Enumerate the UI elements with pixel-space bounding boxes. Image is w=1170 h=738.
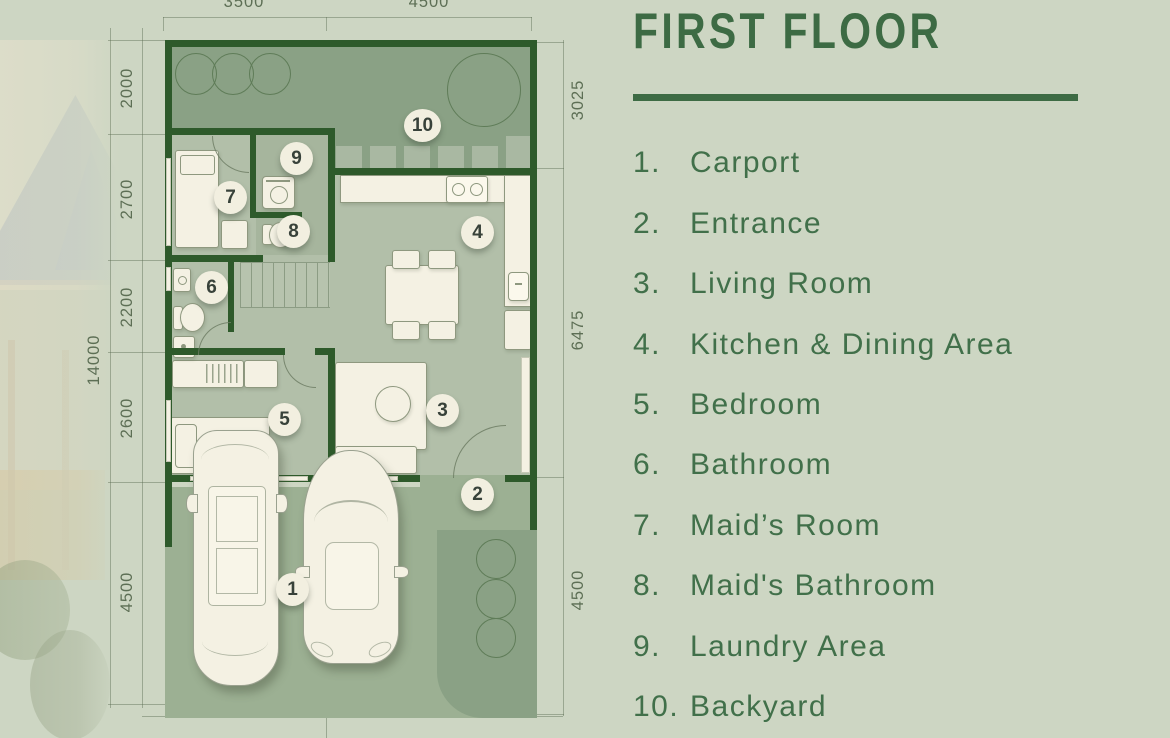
dimension-line [163, 17, 532, 18]
burner-icon [470, 183, 483, 196]
room-badge-bedroom: 5 [268, 403, 301, 436]
page-title: FIRST FLOOR [633, 2, 942, 60]
car-rear-window [202, 627, 268, 656]
dining-chair [428, 321, 456, 340]
dim-label-left-2000: 2000 [119, 58, 135, 118]
legend-item-label: Kitchen & Dining Area [690, 328, 1013, 362]
window-bathroom [166, 267, 171, 291]
dim-label-top-2: 4500 [399, 0, 459, 10]
dimension-tick [108, 40, 165, 41]
room-badge-bathroom: 6 [195, 271, 228, 304]
bedroom-cabinet [244, 360, 278, 388]
dimension-tick [108, 482, 165, 483]
dim-label-right-3025: 3025 [570, 70, 586, 130]
bathroom-sink-icon [173, 268, 191, 292]
dimension-tick [537, 477, 564, 478]
wall-maid-divider [250, 135, 256, 215]
legend-item: 10. Backyard [633, 677, 1103, 737]
legend-item-number: 5. [633, 388, 690, 422]
car-sunroof [216, 496, 258, 542]
dim-label-left-4500: 4500 [119, 562, 135, 622]
stove-icon [446, 176, 488, 203]
car-icon [193, 430, 279, 686]
dim-label-left-2700: 2700 [119, 169, 135, 229]
dimension-tick [531, 17, 532, 31]
dimension-tick [108, 704, 165, 705]
legend-item: 3. Living Room [633, 254, 1103, 314]
legend-item-number: 8. [633, 569, 690, 603]
toilet-icon [180, 303, 205, 332]
title-divider [633, 94, 1078, 101]
washing-machine-icon [262, 176, 295, 209]
wall-right [530, 40, 537, 530]
basin-icon [178, 276, 187, 285]
legend-item: 2. Entrance [633, 193, 1103, 253]
maid-bed [175, 150, 219, 248]
room-badge-living-room: 3 [426, 394, 459, 427]
bedroom-dresser [172, 360, 244, 388]
legend-item: 5. Bedroom [633, 375, 1103, 435]
faucet-icon [515, 283, 522, 285]
legend-item: 7. Maid’s Room [633, 496, 1103, 556]
dimension-tick [108, 352, 165, 353]
tree-icon [249, 53, 291, 95]
dining-table [385, 265, 459, 325]
legend-item-label: Bathroom [690, 448, 832, 482]
dim-label-left-total: 14000 [86, 325, 102, 395]
wall-top [165, 40, 537, 47]
legend-item-label: Entrance [690, 207, 822, 241]
car-roof [325, 542, 379, 610]
legend-item-number: 7. [633, 509, 690, 543]
dim-label-left-2200: 2200 [119, 277, 135, 337]
legend-item: 8. Maid's Bathroom [633, 556, 1103, 616]
tree-icon [212, 53, 254, 95]
floor-plan-page: 3500 4500 2000 2700 2200 2600 4500 14000… [0, 0, 1170, 738]
tree-icon [476, 579, 516, 619]
wall-kitchen-top [335, 168, 530, 175]
wall-left [165, 40, 172, 547]
dimension-tick [163, 17, 164, 31]
paving-stone [506, 136, 530, 172]
window-maid-room [166, 158, 171, 246]
legend-item-label: Maid's Bathroom [690, 569, 937, 603]
tree-icon [476, 539, 516, 579]
legend-item-number: 1. [633, 146, 690, 180]
room-badge-maid-room: 7 [214, 181, 247, 214]
dresser-hatch [206, 364, 239, 383]
dim-label-top-1: 3500 [214, 0, 274, 10]
fridge-icon [504, 310, 532, 350]
coffee-table-icon [375, 386, 411, 422]
wall-maid-top [165, 128, 335, 135]
legend-item-number: 3. [633, 267, 690, 301]
legend-item-number: 10. [633, 690, 690, 724]
pillow-icon [180, 155, 215, 175]
room-badge-kitchen-dining: 4 [461, 216, 494, 249]
large-tree-icon [447, 53, 521, 127]
legend-item: 9. Laundry Area [633, 617, 1103, 677]
dimension-line [142, 28, 143, 708]
dining-chair [392, 250, 420, 269]
room-badge-carport: 1 [276, 573, 309, 606]
dimension-line [110, 28, 111, 708]
legend-item-label: Carport [690, 146, 801, 180]
wall-maid-right [328, 128, 335, 262]
legend-item-number: 2. [633, 207, 690, 241]
dimension-line [563, 40, 564, 716]
legend-item: 6. Bathroom [633, 435, 1103, 495]
legend-item-label: Backyard [690, 690, 827, 724]
legend-item: 1. Carport [633, 133, 1103, 193]
kitchen-sink-icon [508, 272, 529, 301]
burner-icon [452, 183, 465, 196]
legend-item-label: Living Room [690, 267, 873, 301]
room-badge-maid-bathroom: 8 [277, 215, 310, 248]
car-icon [303, 450, 399, 664]
wall-maid-bottom [165, 255, 263, 262]
dimension-tick [326, 17, 327, 31]
window-entrance-side [521, 357, 530, 473]
dim-label-right-4500: 4500 [570, 560, 586, 620]
dimension-tick [108, 260, 165, 261]
tree-icon [476, 618, 516, 658]
legend-list: 1. Carport 2. Entrance 3. Living Room 4.… [633, 133, 1103, 737]
legend-item-number: 9. [633, 630, 690, 664]
dimension-tick [537, 42, 564, 43]
wall-front-stub [505, 475, 537, 482]
dimension-tick [537, 168, 564, 169]
legend-panel: FIRST FLOOR 1. Carport 2. Entrance 3. Li… [633, 0, 1103, 738]
dining-chair [428, 250, 456, 269]
washer-panel [266, 180, 290, 182]
window-bedroom-side [166, 400, 171, 462]
car-windshield [314, 500, 388, 544]
legend-item-label: Bedroom [690, 388, 822, 422]
legend-item-number: 4. [633, 328, 690, 362]
room-badge-backyard: 10 [404, 109, 441, 142]
car-roof [208, 486, 266, 606]
car-windshield [201, 444, 269, 475]
dimension-tick [108, 134, 165, 135]
washer-drum-icon [270, 186, 288, 204]
car-mirror [276, 494, 288, 513]
dimension-line [326, 716, 327, 738]
car-sunroof [216, 548, 258, 594]
dining-chair [392, 321, 420, 340]
dimension-tick [537, 714, 564, 715]
car-mirror [186, 494, 198, 513]
room-badge-entrance: 2 [461, 478, 494, 511]
staircase [240, 262, 330, 308]
dim-label-right-6475: 6475 [570, 300, 586, 360]
tree-icon [175, 53, 217, 95]
car-mirror [394, 566, 409, 578]
maid-nightstand [221, 220, 248, 249]
legend-item-label: Maid’s Room [690, 509, 881, 543]
dim-label-left-2600: 2600 [119, 388, 135, 448]
legend-item-number: 6. [633, 448, 690, 482]
legend-item-label: Laundry Area [690, 630, 886, 664]
room-badge-laundry: 9 [280, 142, 313, 175]
legend-item: 4. Kitchen & Dining Area [633, 314, 1103, 374]
